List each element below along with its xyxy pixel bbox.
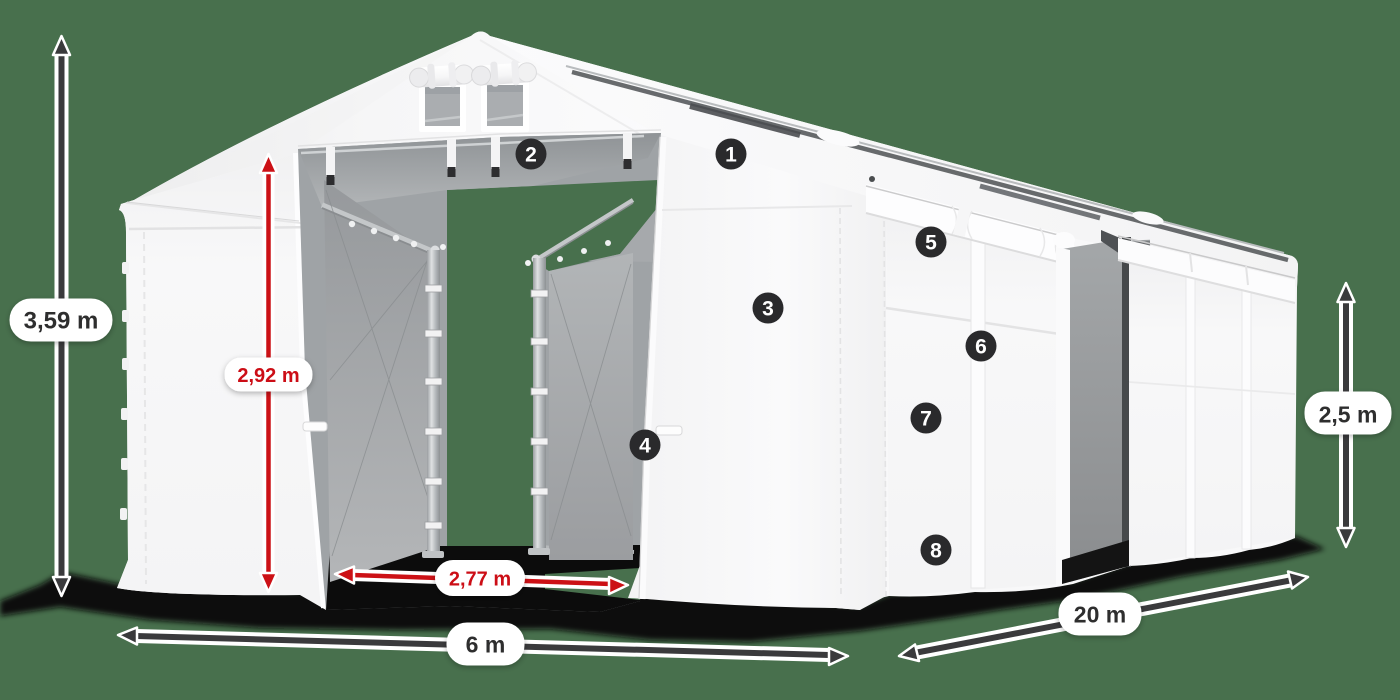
svg-text:2,5 m: 2,5 m xyxy=(1319,402,1378,428)
svg-text:3: 3 xyxy=(762,298,774,321)
svg-text:20 m: 20 m xyxy=(1074,602,1126,628)
svg-text:3,59 m: 3,59 m xyxy=(24,308,99,335)
svg-text:2,77 m: 2,77 m xyxy=(449,569,511,591)
svg-text:8: 8 xyxy=(930,540,942,563)
svg-text:6 m: 6 m xyxy=(466,632,506,658)
svg-text:7: 7 xyxy=(920,408,932,431)
svg-text:4: 4 xyxy=(639,435,651,458)
svg-text:1: 1 xyxy=(725,144,737,167)
svg-text:6: 6 xyxy=(975,336,987,359)
svg-text:5: 5 xyxy=(925,232,937,255)
svg-text:2: 2 xyxy=(525,144,537,167)
svg-text:2,92 m: 2,92 m xyxy=(237,365,299,387)
